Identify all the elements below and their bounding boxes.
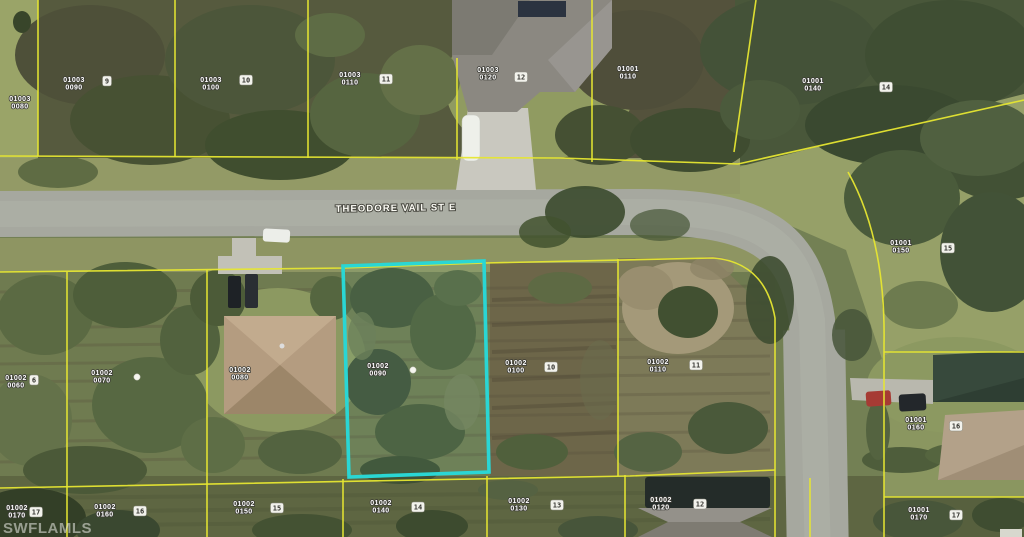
white-car-on-road [263,228,291,242]
lot-number-text: 15 [273,505,281,513]
parcel-label: 010020130 [508,498,529,513]
dark-vehicle [245,274,258,308]
aerial-parcel-map: 0100300800100300900100301000100301100100… [0,0,1024,537]
parcel-label: 010030100 [200,77,221,92]
parcel-label: 010030080 [9,96,30,111]
lot-number-text: 13 [553,502,561,510]
solar-panels [518,1,566,17]
lot-number-text: 11 [692,362,700,370]
parcel-label: 010020090 [367,363,388,378]
lot-number-text: 14 [414,504,422,512]
parcel-label: 010020140 [370,500,391,515]
survey-dot [134,374,140,380]
parcel-label: 010020110 [647,359,668,374]
parcel-label: 010010170 [908,507,929,522]
dark-suv [899,393,927,411]
survey-dot [410,367,416,373]
rv-vehicle [462,115,480,161]
parcel-label: 010030090 [63,77,84,92]
lot-number-text: 15 [944,245,952,253]
red-car [866,390,892,407]
parcel-label: 010010110 [617,66,638,81]
lot-number-text: 17 [32,509,40,517]
parcel-label: 010010140 [802,78,823,93]
parcel-label: 010010160 [905,417,926,432]
parcel-label: 010030110 [339,72,360,87]
lot-number-text: 10 [547,364,555,372]
parcel-label: 010020170 [6,505,27,520]
street-name-label: THEODORE VAIL ST E [335,202,456,215]
dark-vehicle [228,276,241,308]
lot-number-text: 16 [952,423,960,431]
parcel-label: 010020120 [650,497,671,512]
parcel-label: 010020100 [505,360,526,375]
lot-number-text: 17 [952,512,960,520]
lot-number-text: 9 [105,78,109,86]
left-house-driveway [218,256,282,274]
lot-number-text: 10 [242,77,250,85]
lot-number-text: 12 [517,74,525,82]
lot-number-text: 6 [32,377,36,385]
mls-watermark: SWFLAMLS [3,520,92,537]
parcel-label: 010020160 [94,504,115,519]
lot-number-text: 12 [696,501,704,509]
parcel-label: 010010150 [890,240,911,255]
parcel-label: 010030120 [477,67,498,82]
aerial-photo: 0100300800100300900100301000100301100100… [0,0,1024,537]
lot-number-text: 14 [882,84,890,92]
lot-number-text: 11 [382,76,390,84]
parcel-label: 010020150 [233,501,254,516]
lot-number-text: 16 [136,508,144,516]
parcel-label: 010020080 [229,367,250,382]
parcel-label: 010020060 [5,375,26,390]
parcel-label: 010020070 [91,370,112,385]
